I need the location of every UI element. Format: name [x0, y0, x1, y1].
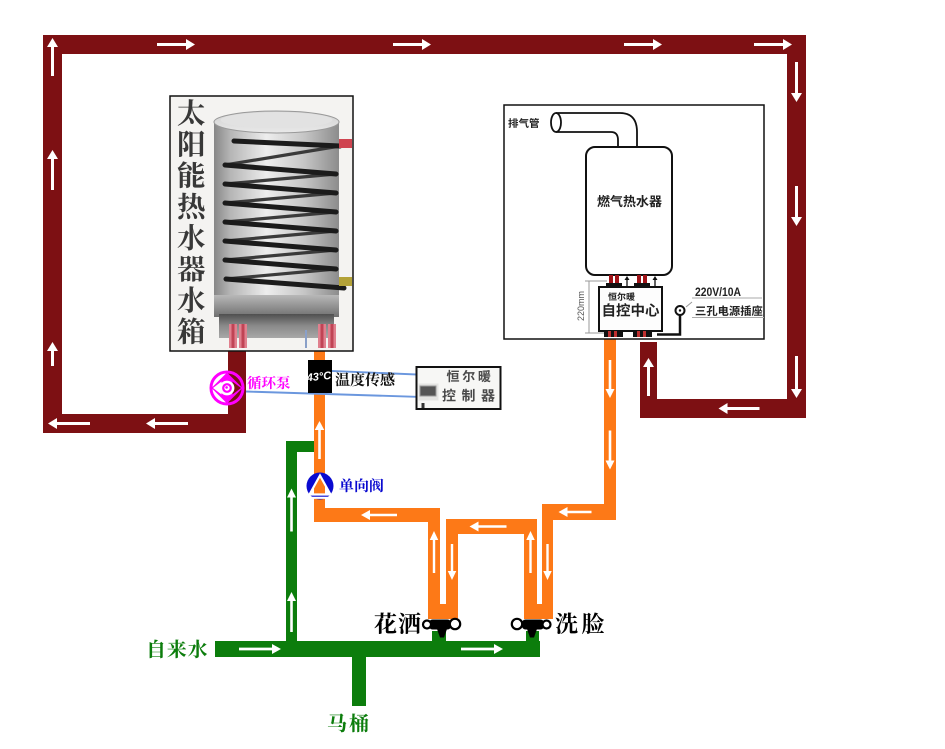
svg-text:220V/10A: 220V/10A — [695, 285, 741, 299]
svg-text:220mm: 220mm — [576, 291, 586, 321]
